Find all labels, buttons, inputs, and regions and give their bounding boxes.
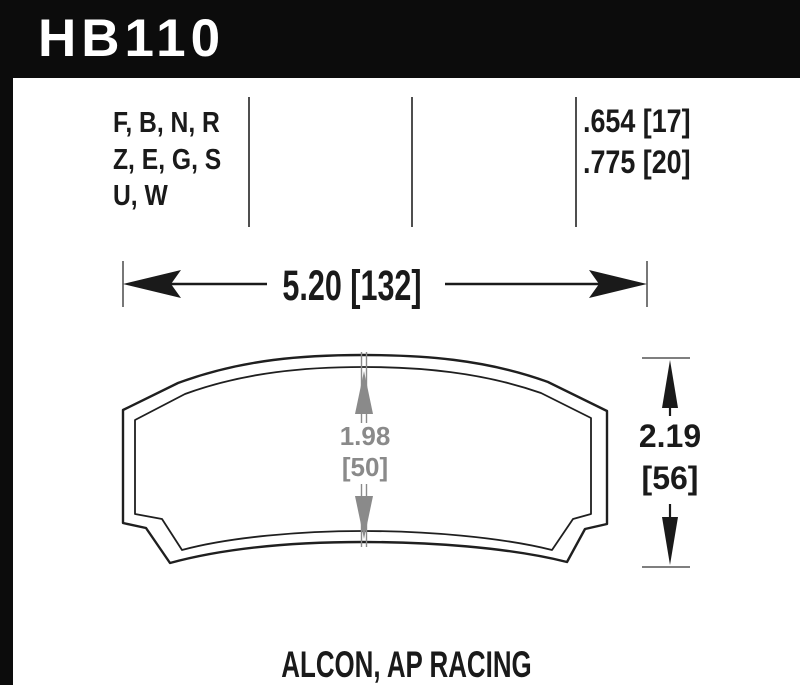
left-border — [0, 0, 13, 685]
arrow-down-icon — [355, 496, 373, 539]
width-dimension-label: 5.20 [132] — [210, 265, 494, 308]
height-mm: [56] — [625, 460, 715, 496]
center-height-inches: 1.98 — [295, 421, 435, 451]
pad-thickness-values: .654 [17] .775 [20] — [583, 101, 691, 183]
header-bar: HB110 — [0, 0, 800, 78]
height-inches: 2.19 — [625, 418, 715, 454]
column-separator-3 — [575, 97, 577, 227]
compound-codes: F, B, N, R Z, E, G, S U, W — [113, 105, 221, 215]
compound-codes-line-3: U, W — [113, 178, 221, 215]
pad-thickness-line-1: .654 [17] — [583, 101, 691, 142]
column-separator-1 — [248, 97, 250, 227]
brake-pad-spec-diagram: HB110 F, B, N, R Z, E, G, S U, W .654 [1… — [0, 0, 800, 691]
center-height-mm: [50] — [295, 452, 435, 482]
compound-codes-line-2: Z, E, G, S — [113, 142, 221, 179]
column-separator-2 — [411, 97, 413, 227]
part-number: HB110 — [38, 9, 225, 69]
caliper-applications: ALCON, AP RACING — [131, 644, 682, 686]
arrow-up-icon — [355, 371, 373, 414]
arrow-up-icon — [662, 360, 678, 408]
pad-thickness-line-2: .775 [20] — [583, 142, 691, 183]
compound-codes-line-1: F, B, N, R — [113, 105, 221, 142]
arrow-down-icon — [662, 517, 678, 565]
